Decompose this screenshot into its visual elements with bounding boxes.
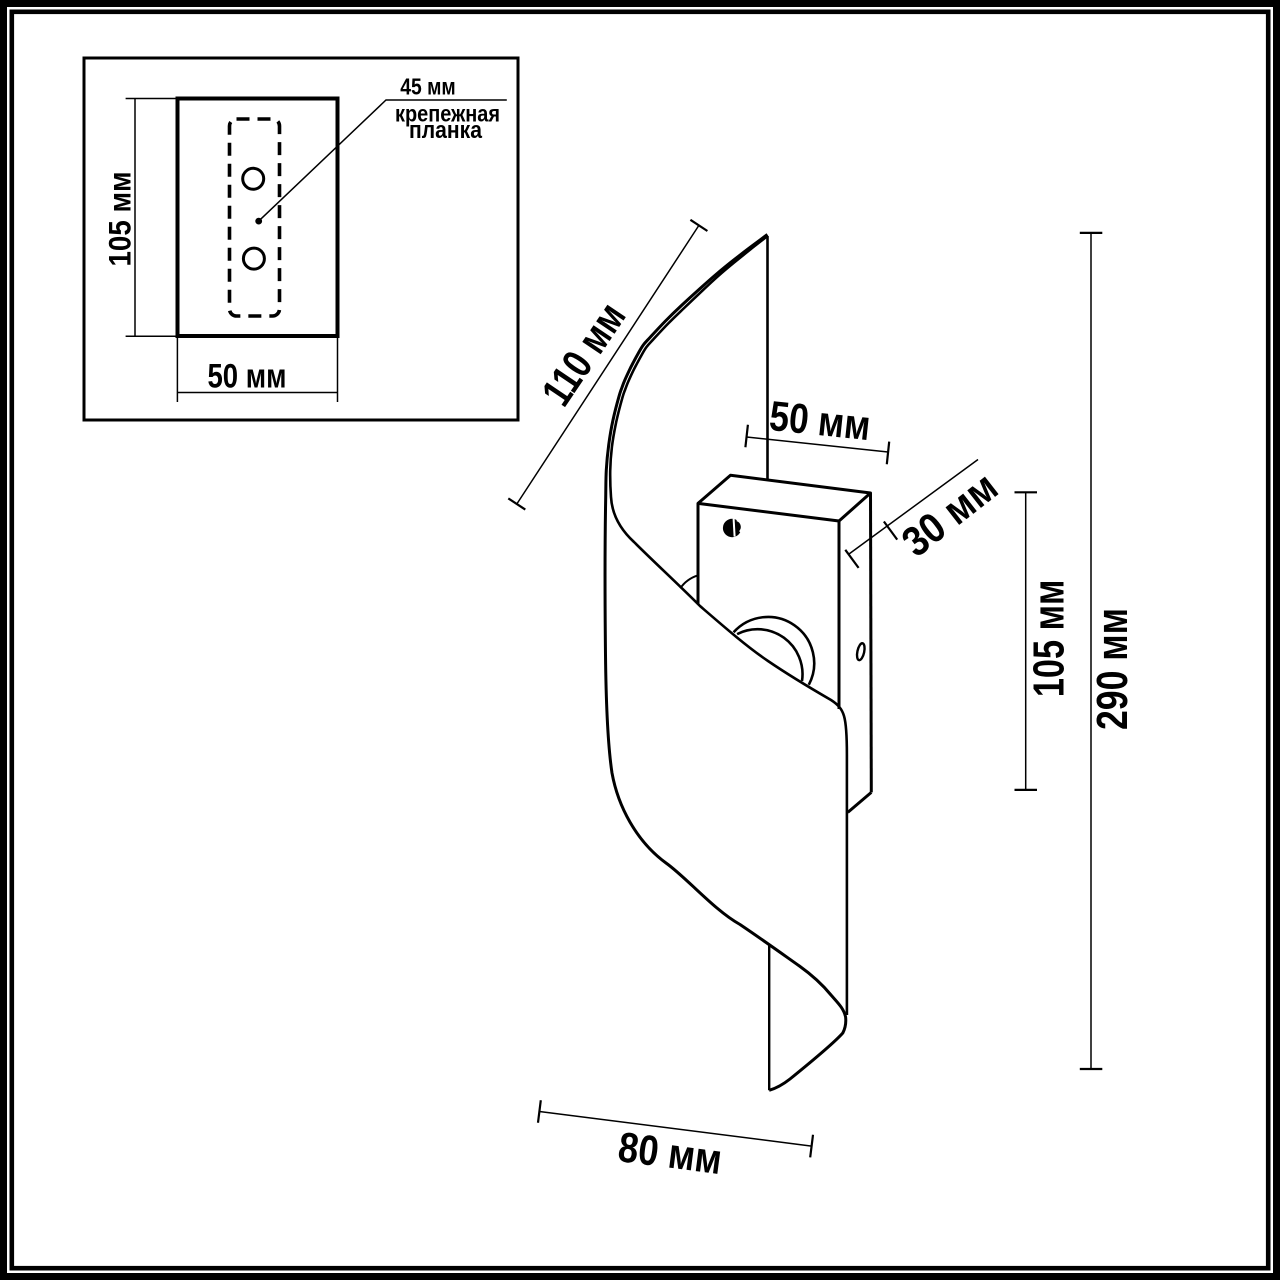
svg-text:45 мм: 45 мм <box>400 74 456 100</box>
svg-text:105 мм: 105 мм <box>102 172 138 267</box>
svg-text:105 мм: 105 мм <box>1026 580 1074 698</box>
svg-text:планка: планка <box>409 117 482 144</box>
svg-text:50 мм: 50 мм <box>208 357 287 395</box>
svg-text:290 мм: 290 мм <box>1089 608 1137 730</box>
